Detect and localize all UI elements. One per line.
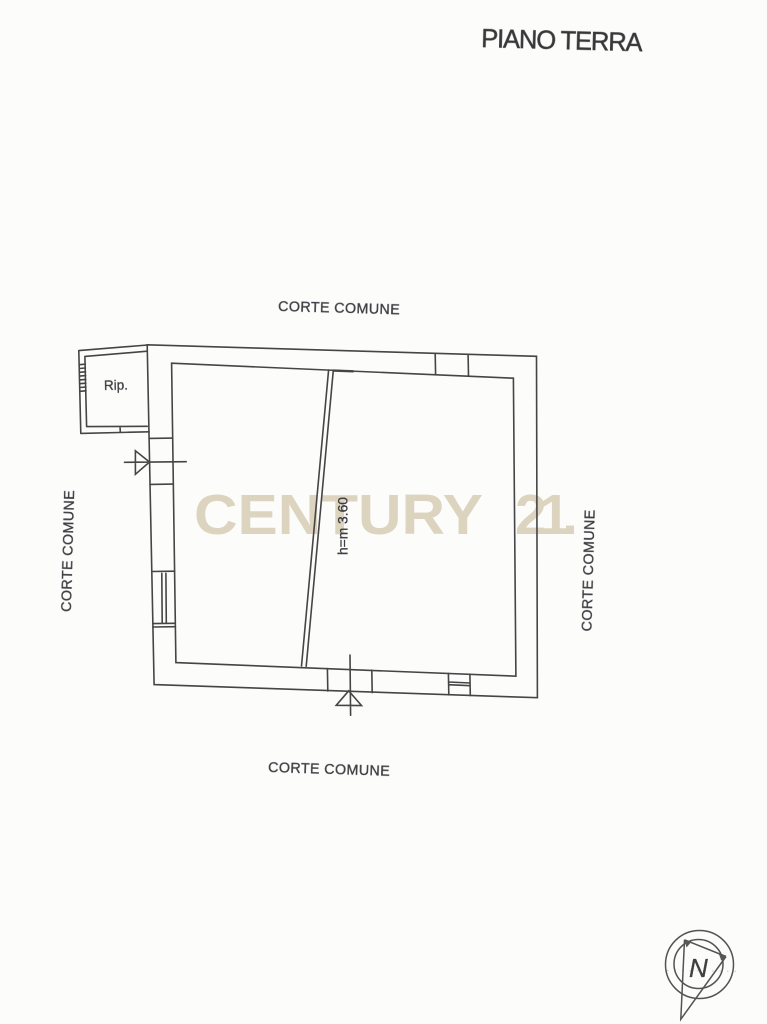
svg-text:21.: 21.	[515, 483, 578, 547]
svg-text:h=m 3.60: h=m 3.60	[336, 497, 351, 555]
svg-text:PIANO TERRA: PIANO TERRA	[481, 25, 643, 57]
svg-text:CORTE COMUNE: CORTE COMUNE	[59, 490, 78, 612]
svg-text:Rip.: Rip.	[104, 378, 128, 393]
svg-text:CORTE COMUNE: CORTE COMUNE	[580, 509, 599, 631]
svg-text:CORTE COMUNE: CORTE COMUNE	[278, 299, 400, 318]
svg-text:N: N	[689, 953, 708, 983]
